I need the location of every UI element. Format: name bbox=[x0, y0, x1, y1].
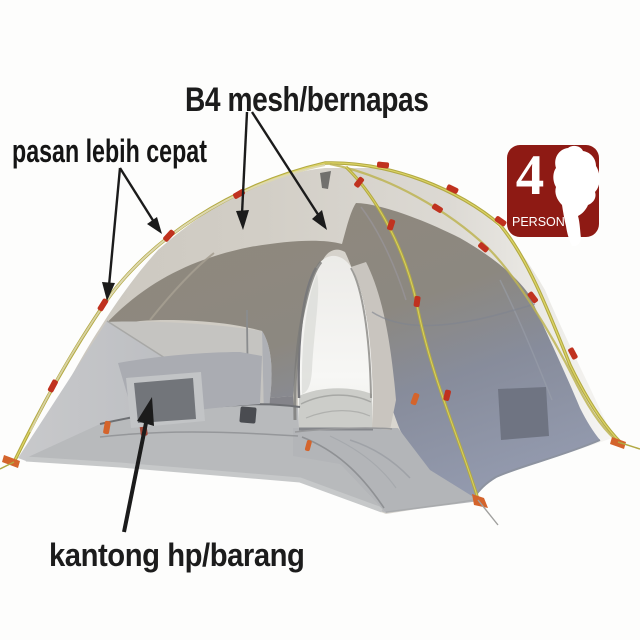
svg-text:4: 4 bbox=[516, 144, 545, 207]
svg-text:PERSON: PERSON bbox=[512, 215, 565, 229]
